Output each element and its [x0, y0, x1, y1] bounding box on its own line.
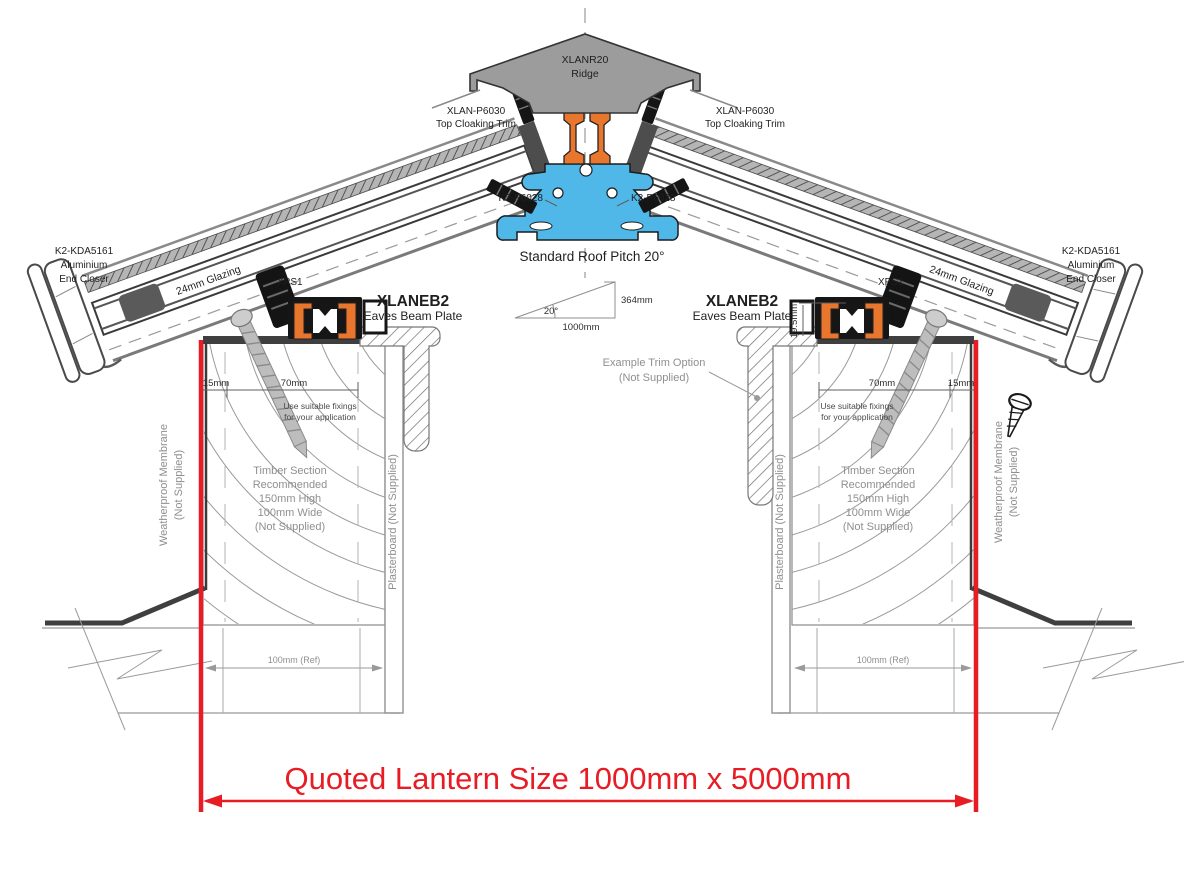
- right-cloaking-name-label: Top Cloaking Trim: [705, 119, 785, 130]
- right-fixing-note-2: for your application: [821, 412, 893, 422]
- left-plasterboard-label: Plasterboard (Not Supplied): [387, 454, 399, 590]
- example-trim-label-2: (Not Supplied): [619, 372, 689, 384]
- ridge-thermal-break-right: [590, 112, 610, 164]
- left-ridge-base-label: K2-P6028: [499, 193, 544, 204]
- quoted-size-text: Quoted Lantern Size 1000mm x 5000mm: [285, 761, 852, 796]
- right-cloaking-part-label: XLAN-P6030: [716, 106, 775, 117]
- left-end-closer-l3: End Closer: [59, 274, 109, 285]
- right-weatherproof-membrane: [972, 588, 1132, 623]
- example-trim-label-1: Example Trim Option: [603, 357, 706, 369]
- pitch-rise-label: 364mm: [621, 295, 653, 306]
- right-plasterboard-label: Plasterboard (Not Supplied): [774, 454, 786, 590]
- right-timber-note-5: (Not Supplied): [843, 521, 913, 533]
- left-membrane-label-1: Weatherproof Membrane: [158, 424, 170, 546]
- left-membrane-label-2: (Not Supplied): [173, 450, 185, 520]
- right-end-closer-l2: Aluminium: [1068, 260, 1115, 271]
- right-membrane-label-2: (Not Supplied): [1008, 447, 1020, 517]
- left-cloaking-name-label: Top Cloaking Trim: [436, 119, 516, 130]
- right-ridge-base-label: K2-P6028: [631, 193, 676, 204]
- left-weatherproof-membrane: [45, 588, 205, 623]
- ridge-name-label: Ridge: [571, 68, 599, 80]
- right-timber-note-1: Timber Section: [841, 465, 915, 477]
- left-timber-note-3: 150mm High: [259, 493, 321, 505]
- right-timber-note-3: 150mm High: [847, 493, 909, 505]
- left-wall-ref-dim: 100mm (Ref): [268, 655, 321, 665]
- right-timber-note-4: 100mm Wide: [846, 507, 911, 519]
- left-xps1-label: XPS1: [277, 277, 303, 288]
- right-xps1-label: XPS1: [878, 277, 904, 288]
- left-timber-note-1: Timber Section: [253, 465, 327, 477]
- left-fixing-dim: 70mm: [281, 378, 307, 389]
- left-cloaking-part-label: XLAN-P6030: [447, 106, 506, 117]
- right-wall-ref-dim: 100mm (Ref): [857, 655, 910, 665]
- left-eaves-beam-name: Eaves Beam Plate: [364, 309, 463, 323]
- beam-height-dim: 19.5mm: [789, 304, 800, 338]
- left-timber-note-2: Recommended: [253, 479, 328, 491]
- ridge-thermal-break-left: [564, 112, 584, 164]
- right-timber-note-2: Recommended: [841, 479, 916, 491]
- pitch-run-label: 1000mm: [563, 322, 600, 333]
- left-eaves-beam-part: XLANEB2: [377, 293, 449, 310]
- roof-lantern-section-drawing: 24mm Glazing 24mm Glazing: [0, 0, 1184, 872]
- right-membrane-label-1: Weatherproof Membrane: [993, 421, 1005, 543]
- drawing-canvas: 24mm Glazing 24mm Glazing: [0, 0, 1184, 872]
- right-end-closer-part: K2-KDA5161: [1062, 246, 1121, 257]
- right-top-cloaking-trim-band: [649, 125, 1085, 293]
- left-break-line: [75, 608, 125, 730]
- right-fixing-note-1: Use suitable fixings: [820, 401, 893, 411]
- right-break-line: [1052, 608, 1102, 730]
- left-timber-note-5: (Not Supplied): [255, 521, 325, 533]
- left-fixing-note-1: Use suitable fixings: [283, 401, 356, 411]
- right-edge-dim: 15mm: [948, 378, 974, 389]
- right-eaves-beam-name: Eaves Beam Plate: [693, 309, 792, 323]
- left-end-closer-part: K2-KDA5161: [55, 246, 114, 257]
- right-fixing-dim: 70mm: [869, 378, 895, 389]
- right-eaves-beam-part: XLANEB2: [706, 293, 778, 310]
- roof-pitch-label: Standard Roof Pitch 20°: [520, 249, 665, 264]
- left-edge-dim: 15mm: [203, 378, 229, 389]
- left-end-closer-l2: Aluminium: [61, 260, 108, 271]
- ridge-part-label: XLANR20: [562, 54, 609, 66]
- right-end-closer-l3: End Closer: [1066, 274, 1116, 285]
- left-fixing-note-2: for your application: [284, 412, 356, 422]
- pitch-angle-label: 20°: [544, 306, 559, 317]
- left-top-cloaking-trim-band: [84, 125, 520, 293]
- pitch-triangle: [515, 282, 615, 318]
- left-timber-note-4: 100mm Wide: [258, 507, 323, 519]
